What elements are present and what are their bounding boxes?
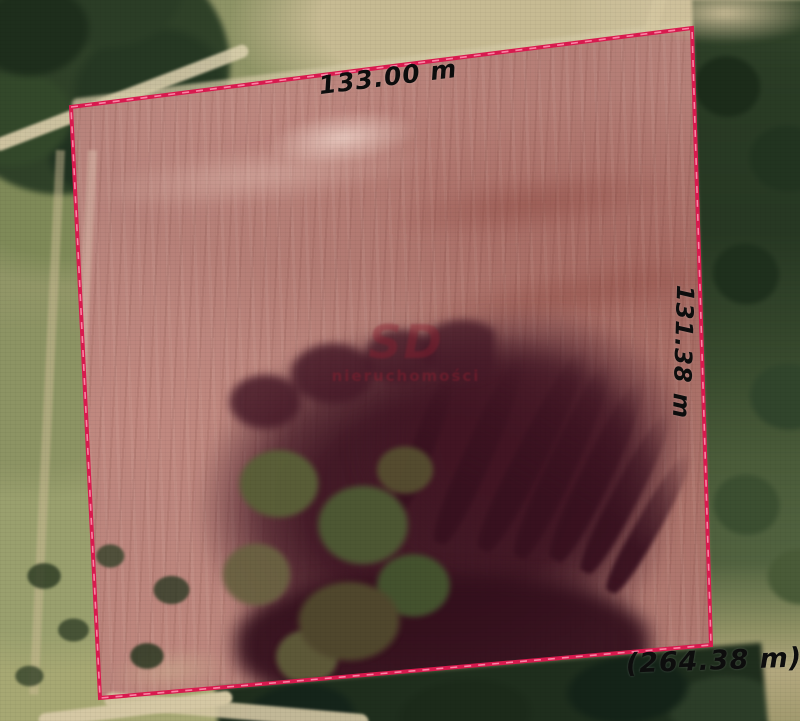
aerial-map: SD nieruchomości 133.00 m 131.38 m (264.… [0, 0, 800, 721]
dimension-label-total: (264.38 m) [625, 642, 800, 679]
dimension-label-right: 131.38 m [667, 285, 699, 420]
plot-boundary-dashes [71, 28, 711, 698]
plot-boundary-line [71, 28, 711, 698]
